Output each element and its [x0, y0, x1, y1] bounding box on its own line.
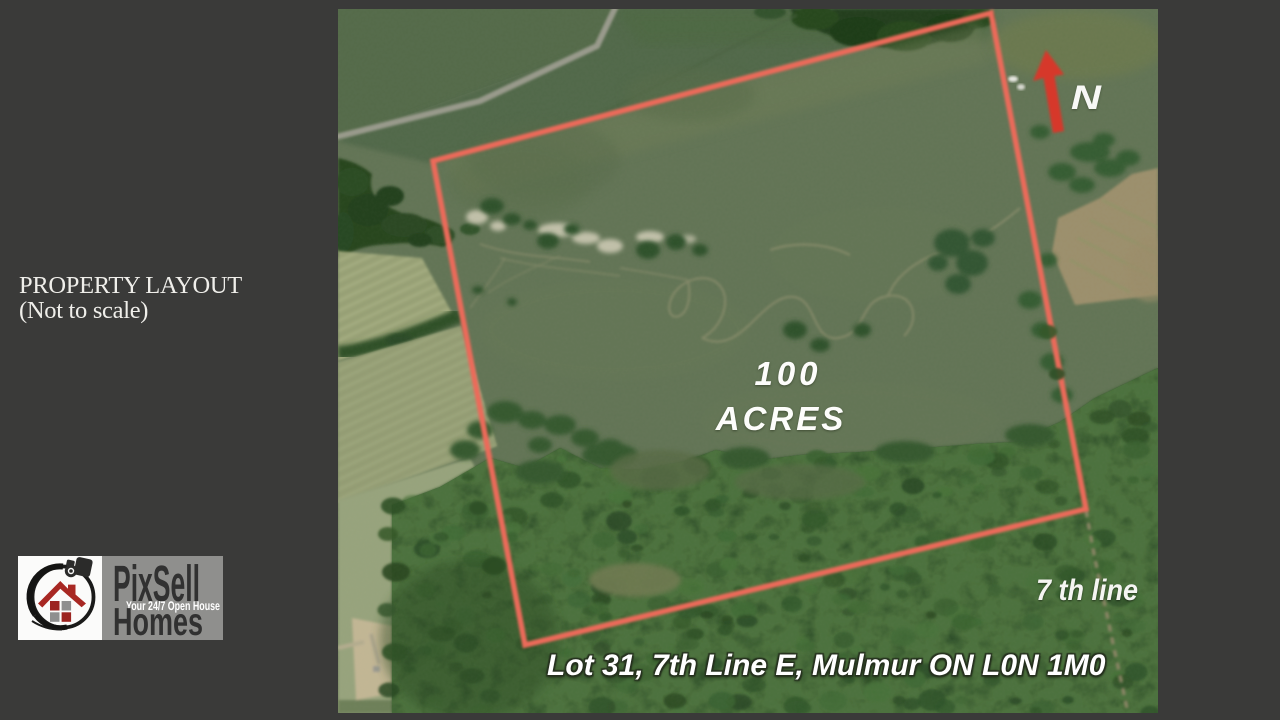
svg-text:Homes: Homes	[113, 601, 203, 644]
